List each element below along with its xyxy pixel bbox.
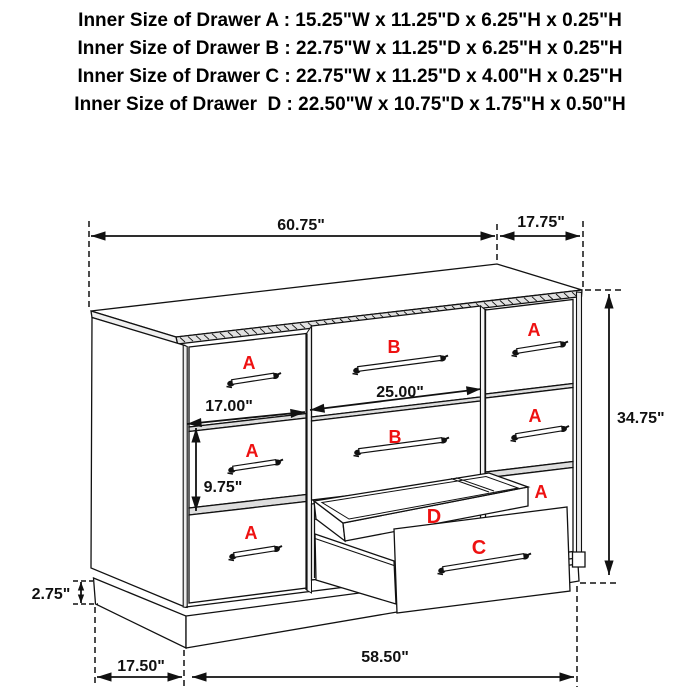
svg-text:Inner Size of Drawer D : 22.5: Inner Size of Drawer D : 22.50"W x 10.75… bbox=[74, 94, 625, 115]
svg-text:17.50": 17.50" bbox=[117, 658, 165, 675]
svg-text:34.75": 34.75" bbox=[617, 410, 665, 427]
svg-text:58.50": 58.50" bbox=[361, 649, 409, 666]
svg-text:25.00": 25.00" bbox=[376, 384, 424, 401]
svg-text:B: B bbox=[388, 337, 401, 357]
svg-text:A: A bbox=[528, 320, 541, 340]
svg-text:B: B bbox=[389, 427, 402, 447]
svg-text:A: A bbox=[245, 523, 258, 543]
svg-text:A: A bbox=[529, 406, 542, 426]
svg-text:A: A bbox=[535, 482, 548, 502]
svg-text:9.75": 9.75" bbox=[204, 479, 243, 496]
svg-text:17.75": 17.75" bbox=[517, 214, 565, 231]
svg-text:17.00": 17.00" bbox=[205, 398, 253, 415]
svg-text:Inner Size of Drawer B : 22.75: Inner Size of Drawer B : 22.75"W x 11.25… bbox=[77, 38, 622, 59]
svg-text:A: A bbox=[246, 441, 259, 461]
svg-text:C: C bbox=[472, 537, 486, 559]
svg-text:D: D bbox=[427, 506, 441, 528]
svg-text:60.75": 60.75" bbox=[277, 217, 325, 234]
svg-text:A: A bbox=[243, 353, 256, 373]
svg-text:2.75": 2.75" bbox=[32, 586, 71, 603]
svg-text:Inner Size of Drawer A : 15.25: Inner Size of Drawer A : 15.25"W x 11.25… bbox=[78, 10, 622, 31]
svg-text:Inner Size of Drawer C : 22.75: Inner Size of Drawer C : 22.75"W x 11.25… bbox=[77, 66, 622, 87]
